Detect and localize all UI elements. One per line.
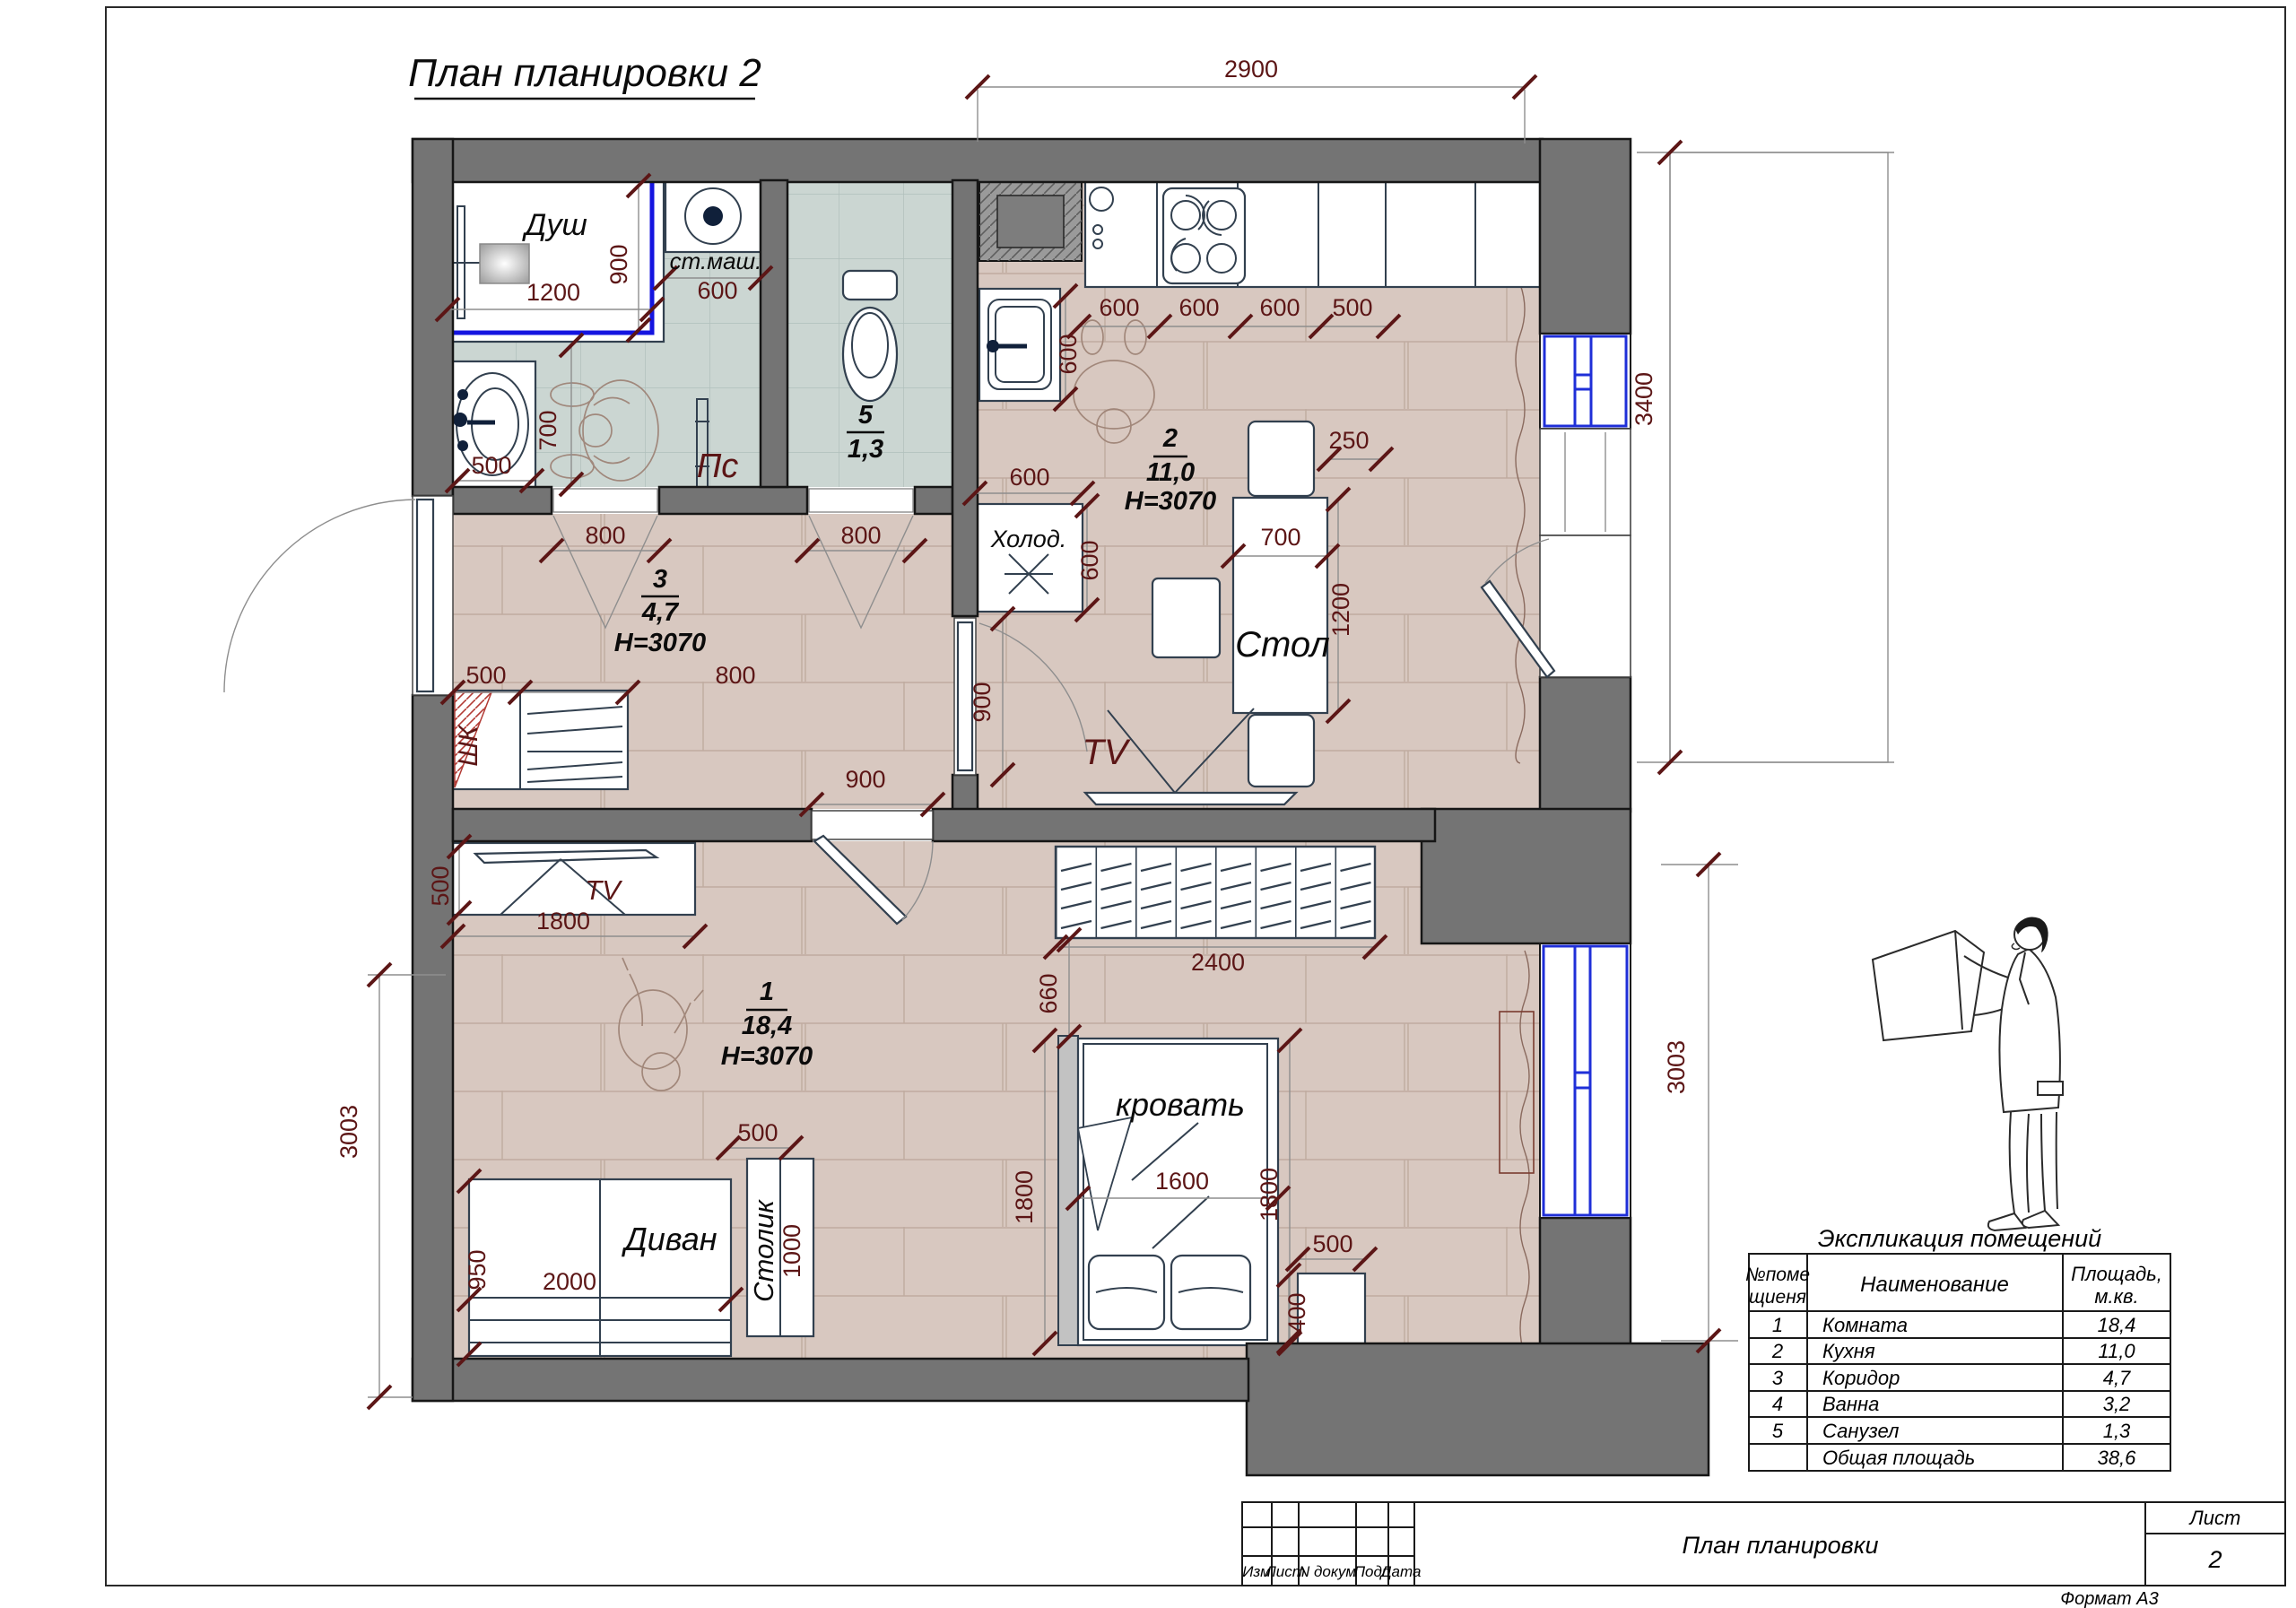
shower-label: Душ [521, 208, 587, 242]
dim-shower-900: 900 [605, 244, 632, 284]
title-block: Изм Лист N докум Подп Дата План планиров… [1242, 1502, 2285, 1608]
dim-table-1200: 1200 [1327, 583, 1354, 637]
dim-bed-1800-left: 1800 [1011, 1170, 1038, 1224]
row3-name: Коридор [1822, 1367, 1900, 1389]
row5-name: Санузел [1822, 1420, 1899, 1442]
coffee-table-label: Столик [748, 1199, 779, 1302]
row2-name: Кухня [1822, 1340, 1875, 1362]
kitchen-sink [979, 289, 1060, 401]
dim-stolik-500: 500 [737, 1119, 778, 1146]
room5-area: 1,3 [848, 435, 883, 464]
dim-counter-600v: 600 [1055, 334, 1082, 374]
dim-bath-700: 700 [535, 410, 561, 450]
fridge [975, 504, 1083, 612]
wardrobe-shk-label: ШК [454, 724, 483, 767]
tv-cabinet [453, 843, 695, 915]
dim-counter-600a: 600 [1099, 294, 1139, 321]
vent-shaft [979, 182, 1082, 261]
row2-num: 2 [1771, 1340, 1783, 1362]
row1-area: 18,4 [2098, 1314, 2136, 1336]
room2-area: 11,0 [1146, 458, 1195, 487]
bed-label: кровать [1116, 1086, 1245, 1123]
dim-bed-1800-right: 1800 [1256, 1168, 1283, 1221]
dim-stolik-1000: 1000 [778, 1224, 805, 1278]
dim-tv-1800: 1800 [536, 908, 590, 934]
balcony-fixed-panel [1540, 429, 1631, 535]
dim-3400: 3400 [1631, 372, 1657, 426]
drawing-sheet: План планировки 2 2900 3400 3003 3003 Ду… [0, 0, 2296, 1608]
kitchen-window [1540, 334, 1631, 429]
tb-data: Дата [1379, 1563, 1422, 1580]
tb-sheet-number: 2 [2207, 1546, 2222, 1573]
row4-name: Ванна [1822, 1393, 1879, 1415]
row1-name: Комната [1822, 1314, 1908, 1336]
explication-title: Экспликация помещений [1818, 1225, 2101, 1252]
kitchen-tv-label: TV [1082, 733, 1130, 772]
dim-3003-right: 3003 [1663, 1040, 1690, 1094]
room1-height: H=3070 [721, 1042, 813, 1071]
dim-shk-500: 500 [465, 662, 506, 689]
table-label: Стол [1235, 625, 1330, 665]
kitchen-counter [1085, 182, 1540, 287]
row1-num: 1 [1772, 1314, 1783, 1336]
room2-height: H=3070 [1125, 487, 1216, 516]
dim-2900: 2900 [1224, 56, 1278, 83]
col-num-header-1: №поме [1745, 1265, 1810, 1285]
dim-table-250: 250 [1328, 427, 1369, 454]
tb-doc-title: План планировки [1682, 1532, 1878, 1559]
dim-wardrobe-2400: 2400 [1191, 949, 1245, 976]
dim-table-700: 700 [1260, 524, 1300, 551]
dim-bed-1600: 1600 [1155, 1168, 1209, 1195]
dim-basin-500: 500 [471, 452, 511, 479]
dim-fridge-600-top: 600 [1009, 464, 1049, 491]
sofa [469, 1179, 731, 1356]
dim-bath-door-800: 800 [585, 522, 625, 549]
dim-nightstand-400: 400 [1283, 1292, 1310, 1333]
dim-sofa-950: 950 [464, 1249, 491, 1290]
explication-table: Экспликация помещений №поме щиеня Наимен… [1745, 1225, 2170, 1471]
row4-num: 4 [1772, 1393, 1783, 1415]
format-note: Формат А3 [2060, 1589, 2158, 1608]
room1-area: 18,4 [742, 1012, 792, 1040]
toilet [843, 271, 897, 401]
dim-fridge-600-right: 600 [1076, 540, 1103, 580]
dim-sofa-2000: 2000 [543, 1268, 596, 1295]
room5-number: 5 [858, 401, 874, 430]
livingroom-window [1540, 943, 1631, 1218]
col-area-header-2: м.кв. [2094, 1285, 2138, 1308]
paper-sheet [1873, 931, 1984, 1040]
row4-area: 3,2 [2103, 1393, 2131, 1415]
dim-shk-800: 800 [715, 662, 755, 689]
row6-name: Общая площадь [1822, 1447, 1975, 1469]
dim-counter-500: 500 [1332, 294, 1372, 321]
tb-sheet-label: Лист [2188, 1507, 2241, 1529]
towel-rail-label: Пс [697, 448, 739, 485]
wardrobe [1056, 847, 1375, 938]
dim-counter-600b: 600 [1178, 294, 1219, 321]
tb-ndok: N докум [1299, 1563, 1356, 1580]
room3-height: H=3070 [614, 629, 706, 657]
dim-wc-door-800: 800 [840, 522, 881, 549]
dim-corridor-door-900: 900 [845, 766, 885, 793]
man-reading-figure [1873, 917, 2063, 1231]
sofa-label: Диван [621, 1221, 717, 1257]
dim-nightstand-500: 500 [1312, 1230, 1352, 1257]
livingroom-tv-label: TV [585, 874, 623, 906]
col-num-header-2: щиеня [1749, 1287, 1806, 1308]
row3-area: 4,7 [2103, 1367, 2131, 1389]
washer-label: ст.маш. [670, 248, 762, 274]
page-title: План планировки 2 [408, 51, 761, 95]
col-area-header-1: Площадь, [2071, 1263, 2162, 1285]
room2-number: 2 [1162, 424, 1178, 453]
col-name-header: Наименование [1860, 1273, 2009, 1297]
row5-area: 1,3 [2103, 1420, 2131, 1442]
row3-num: 3 [1772, 1367, 1784, 1389]
floor-plan-drawing: План планировки 2 2900 3400 3003 3003 Ду… [0, 0, 2296, 1608]
dim-kitchen-door-900: 900 [969, 682, 996, 722]
dim-3003-left: 3003 [335, 1105, 362, 1159]
hob [1163, 188, 1245, 283]
room1-number: 1 [760, 978, 774, 1006]
entrance-door [224, 496, 453, 695]
room3-number: 3 [653, 565, 667, 594]
dim-washer-600: 600 [697, 277, 737, 304]
shower-tray [480, 244, 529, 283]
row5-num: 5 [1772, 1420, 1784, 1442]
dim-gap-660: 660 [1035, 973, 1062, 1013]
fridge-label: Холод. [990, 526, 1067, 552]
dim-shower-1200: 1200 [526, 279, 580, 306]
row2-area: 11,0 [2098, 1340, 2135, 1362]
room3-area: 4,7 [641, 598, 680, 627]
row6-area: 38,6 [2098, 1447, 2137, 1469]
dim-counter-600c: 600 [1259, 294, 1300, 321]
balcony-outline [1670, 152, 1888, 762]
dim-tv-500: 500 [427, 865, 454, 906]
